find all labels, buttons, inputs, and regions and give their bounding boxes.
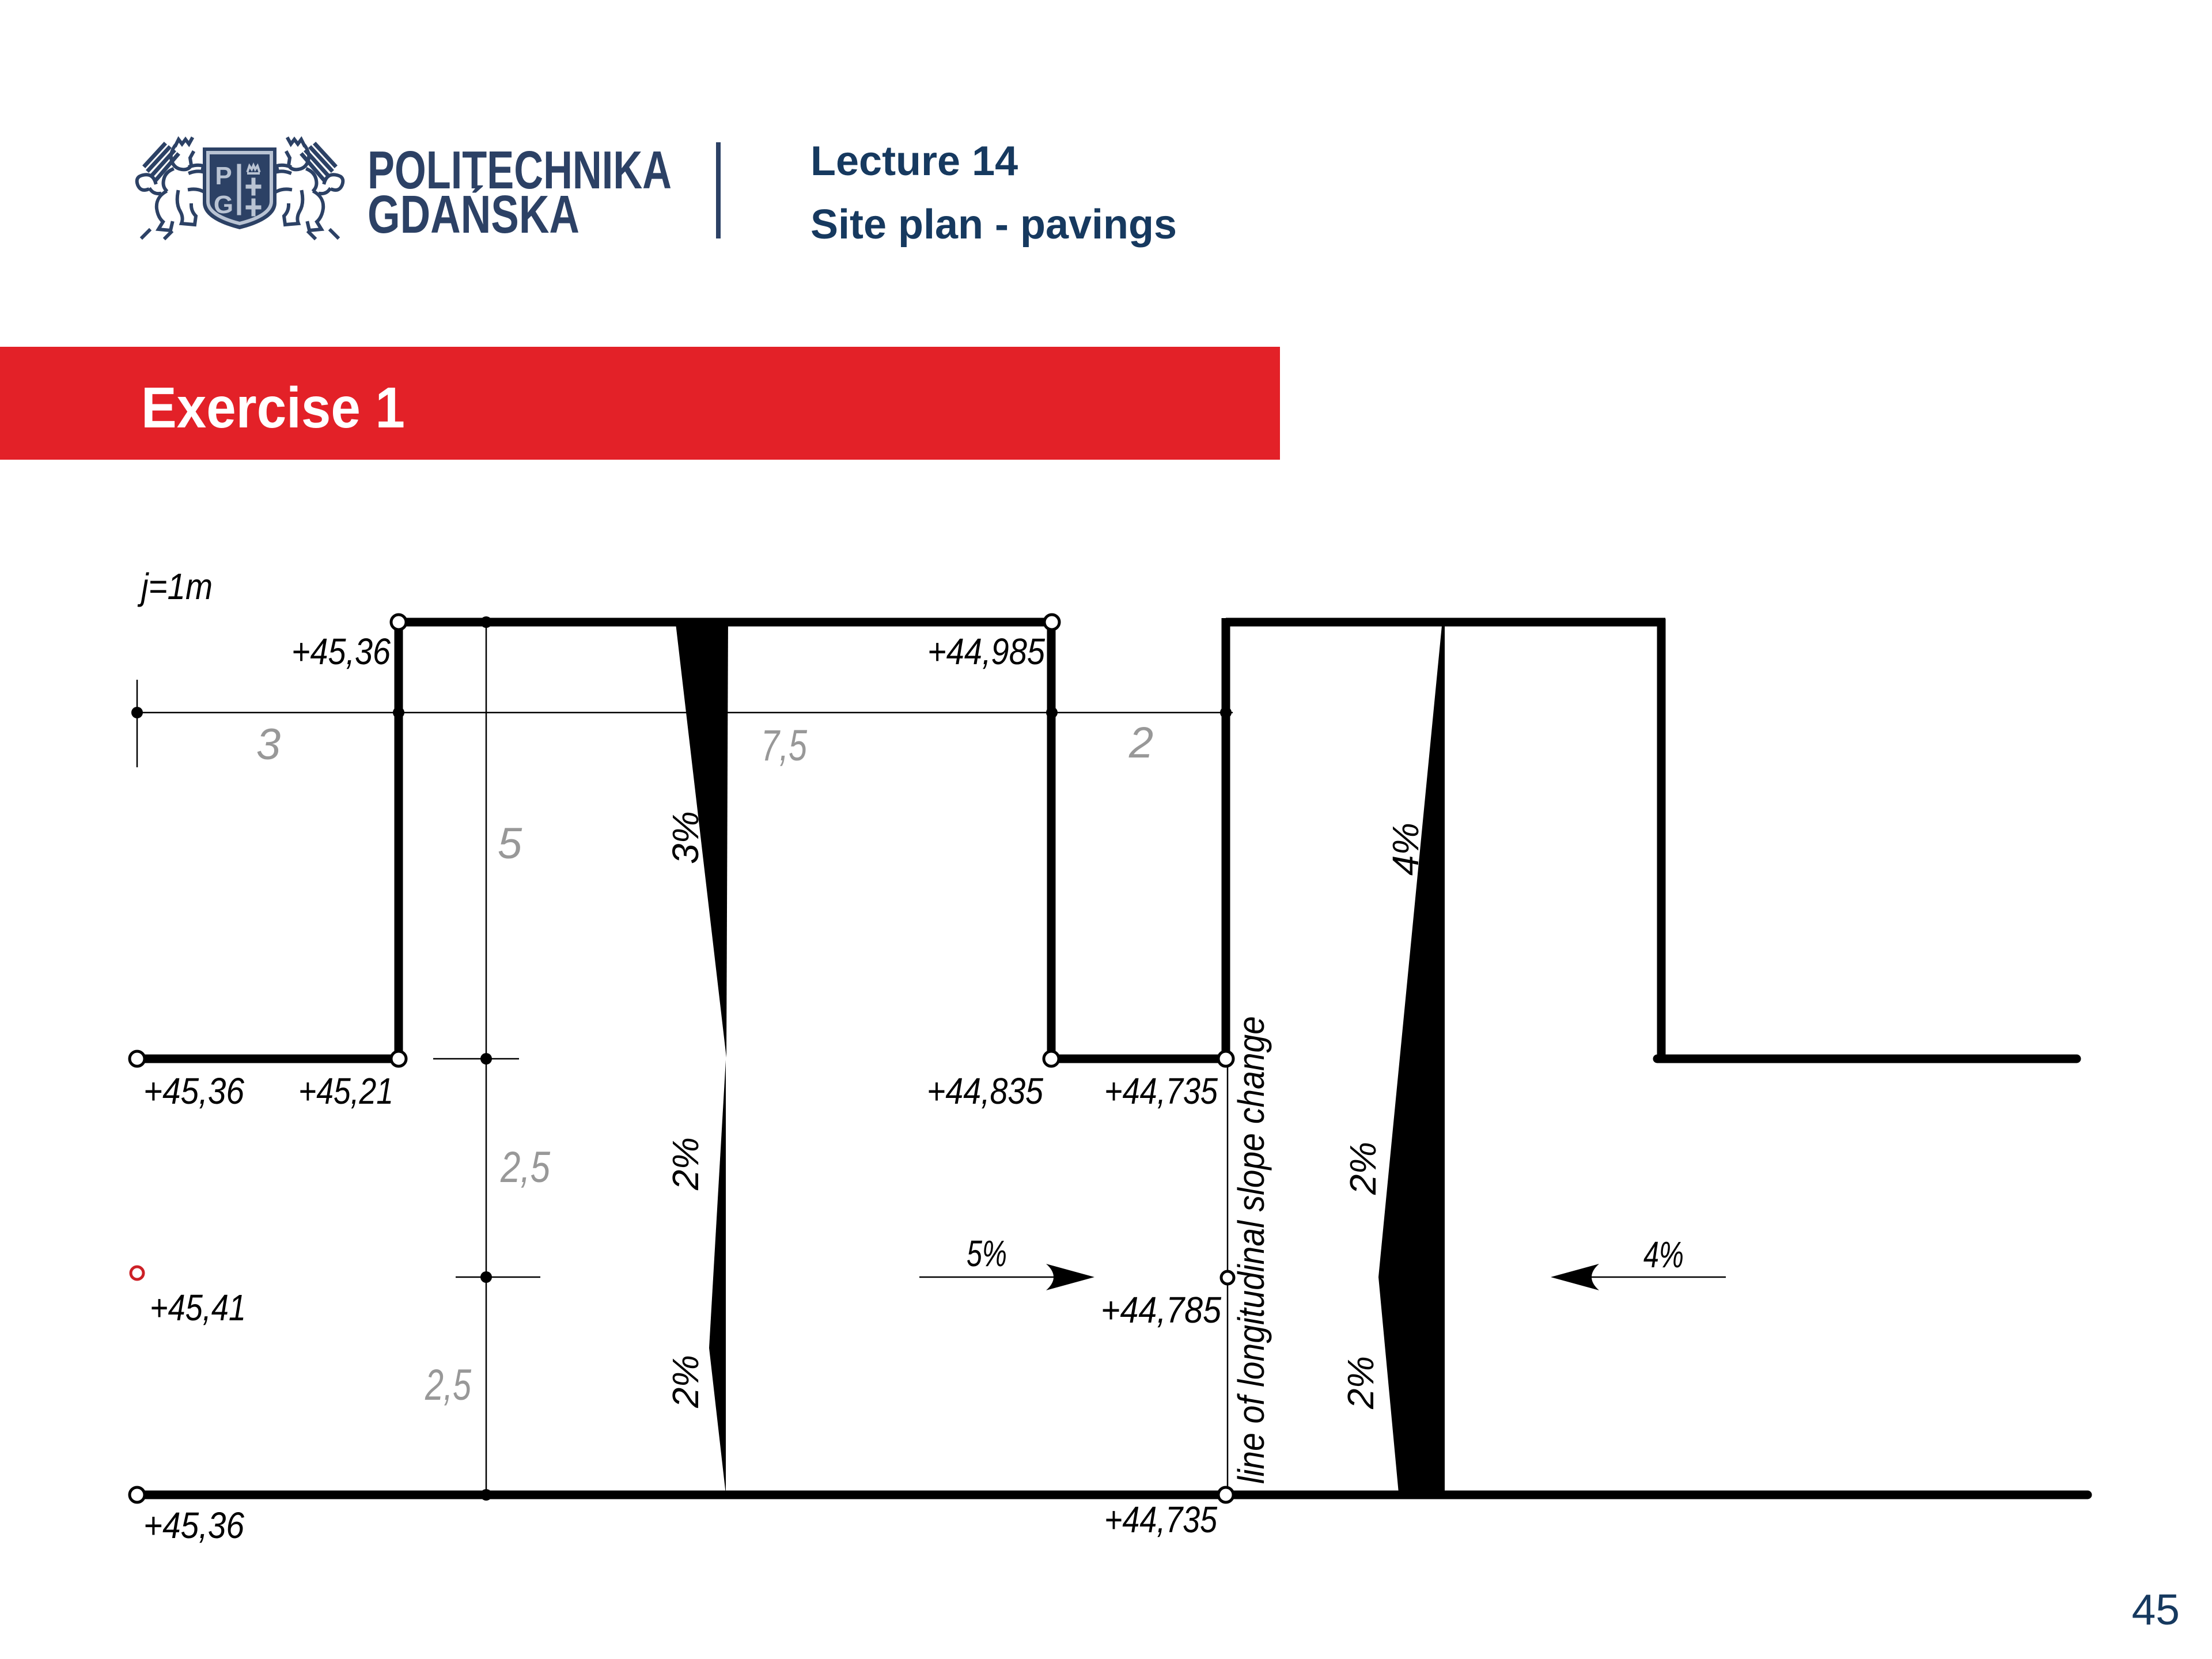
svg-text:3: 3	[256, 720, 281, 769]
svg-text:3%: 3%	[665, 811, 706, 864]
svg-text:2,5: 2,5	[425, 1361, 471, 1410]
svg-text:j=1m: j=1m	[137, 566, 213, 607]
svg-text:2%: 2%	[665, 1137, 706, 1191]
svg-text:+44,735: +44,735	[1104, 1499, 1217, 1540]
svg-text:P: P	[215, 162, 232, 190]
svg-text:+44,835: +44,835	[927, 1070, 1043, 1112]
svg-text:2%: 2%	[1340, 1356, 1381, 1410]
svg-text:Exercise 1: Exercise 1	[141, 376, 405, 440]
svg-text:5%: 5%	[967, 1233, 1007, 1274]
svg-text:7,5: 7,5	[761, 721, 808, 770]
svg-text:+44,735: +44,735	[1104, 1070, 1218, 1112]
svg-text:Site plan - pavings: Site plan - pavings	[810, 202, 1177, 248]
svg-text:+45,36: +45,36	[143, 1070, 244, 1112]
svg-text:+45,21: +45,21	[298, 1070, 393, 1112]
svg-text:2: 2	[1128, 718, 1153, 767]
svg-text:GDAŃSKA: GDAŃSKA	[368, 184, 579, 244]
svg-text:2%: 2%	[1342, 1142, 1384, 1195]
svg-text:line of longitudinal slope cha: line of longitudinal slope change	[1230, 1016, 1272, 1484]
svg-text:45: 45	[2132, 1585, 2180, 1634]
svg-text:+45,36: +45,36	[291, 631, 391, 672]
svg-text:+44,785: +44,785	[1101, 1289, 1221, 1331]
svg-text:G: G	[214, 191, 233, 219]
svg-text:+44,985: +44,985	[927, 631, 1045, 672]
svg-text:4%: 4%	[1385, 823, 1426, 876]
svg-text:+45,36: +45,36	[143, 1505, 244, 1546]
svg-text:4%: 4%	[1643, 1234, 1684, 1275]
svg-text:2%: 2%	[665, 1355, 706, 1408]
svg-text:+45,41: +45,41	[150, 1287, 246, 1328]
svg-text:5: 5	[498, 819, 522, 868]
svg-text:2,5: 2,5	[500, 1143, 550, 1192]
svg-text:Lecture 14: Lecture 14	[810, 138, 1018, 184]
